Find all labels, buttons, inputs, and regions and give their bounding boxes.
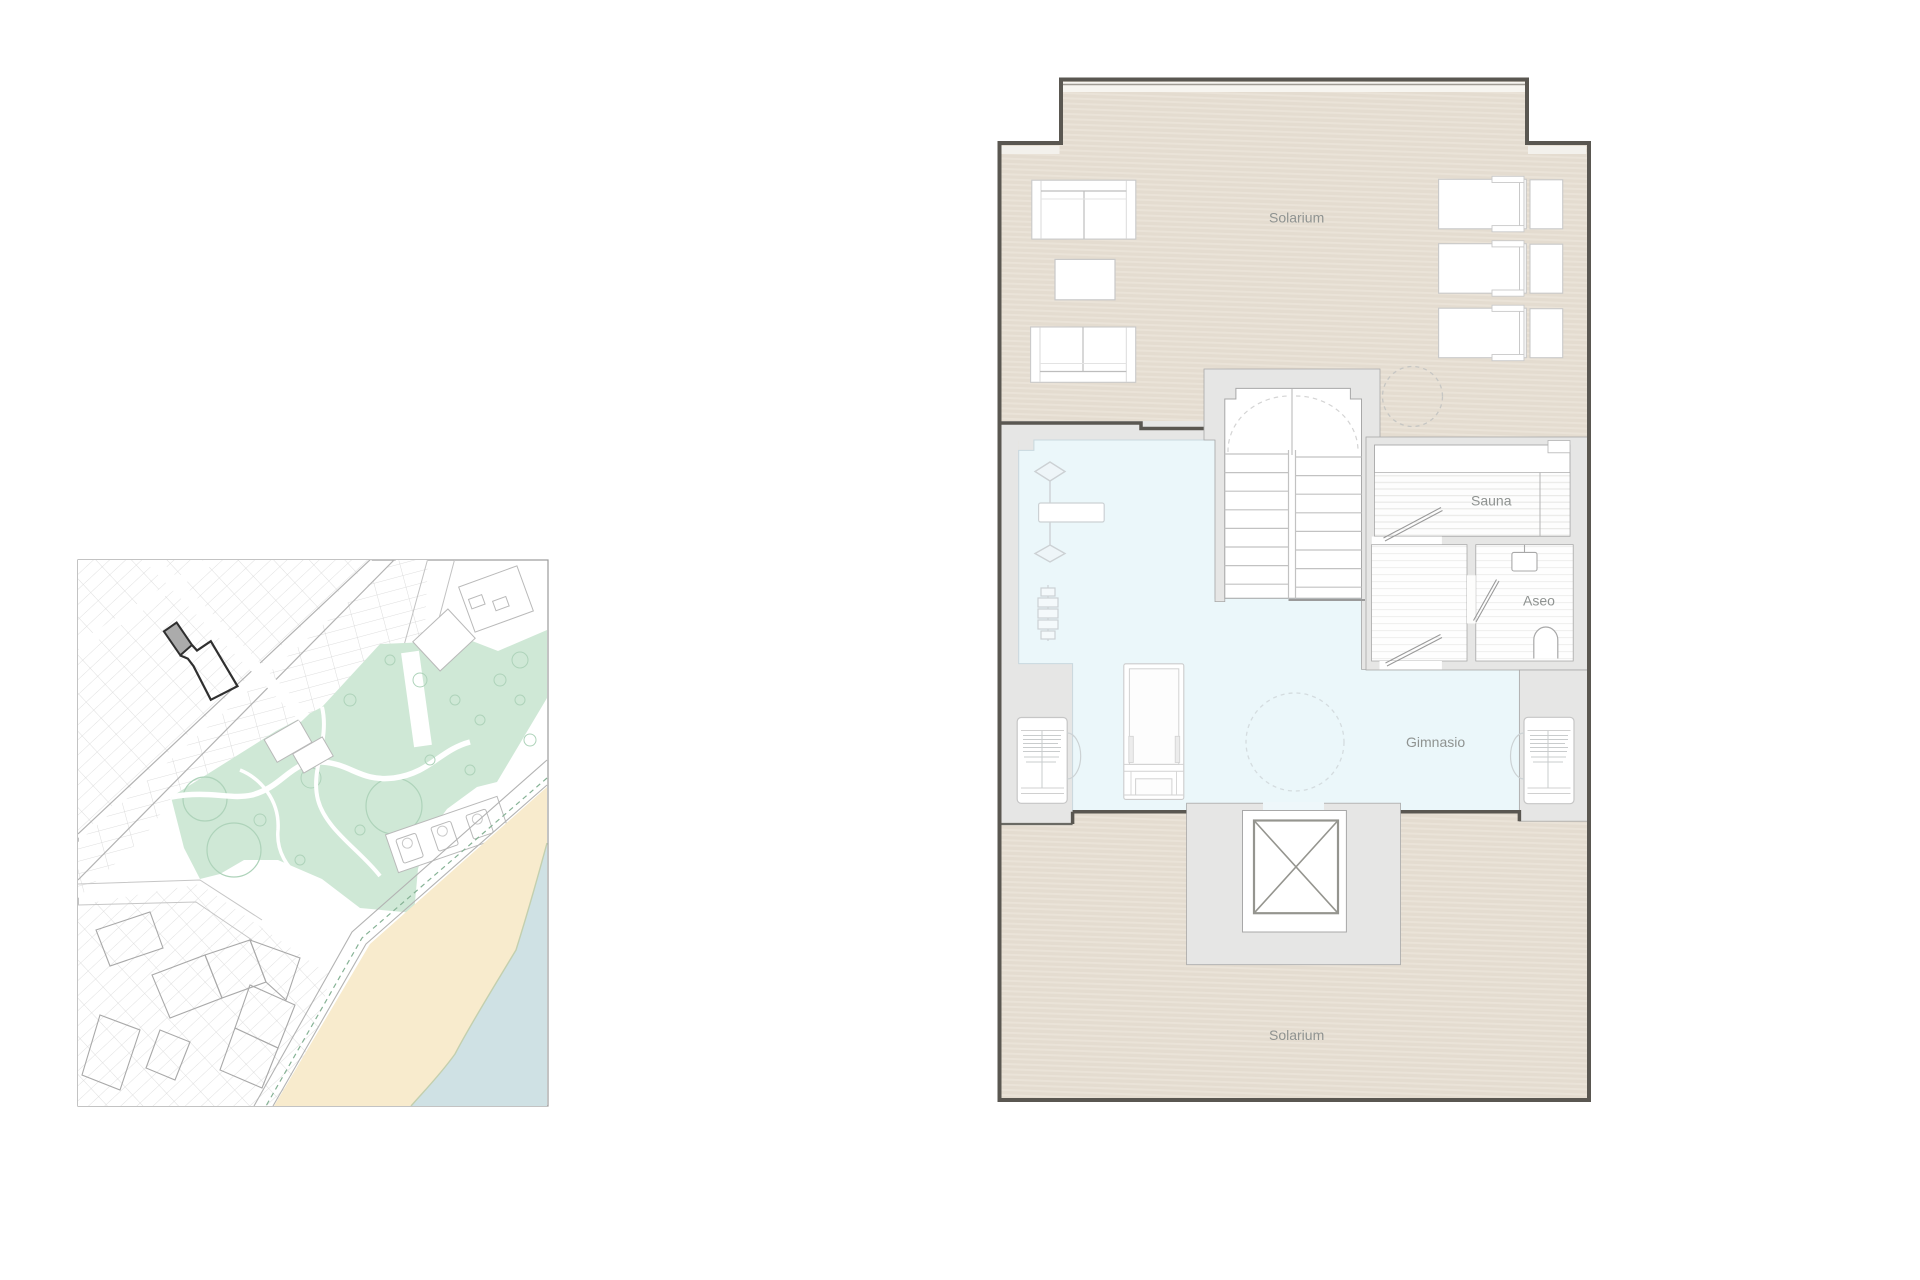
svg-text:Aseo: Aseo: [1523, 593, 1555, 609]
svg-text:Solarium: Solarium: [1269, 1027, 1324, 1043]
svg-text:Solarium: Solarium: [1269, 210, 1324, 226]
svg-text:Gimnasio: Gimnasio: [1406, 734, 1465, 750]
svg-text:Sauna: Sauna: [1471, 493, 1512, 509]
